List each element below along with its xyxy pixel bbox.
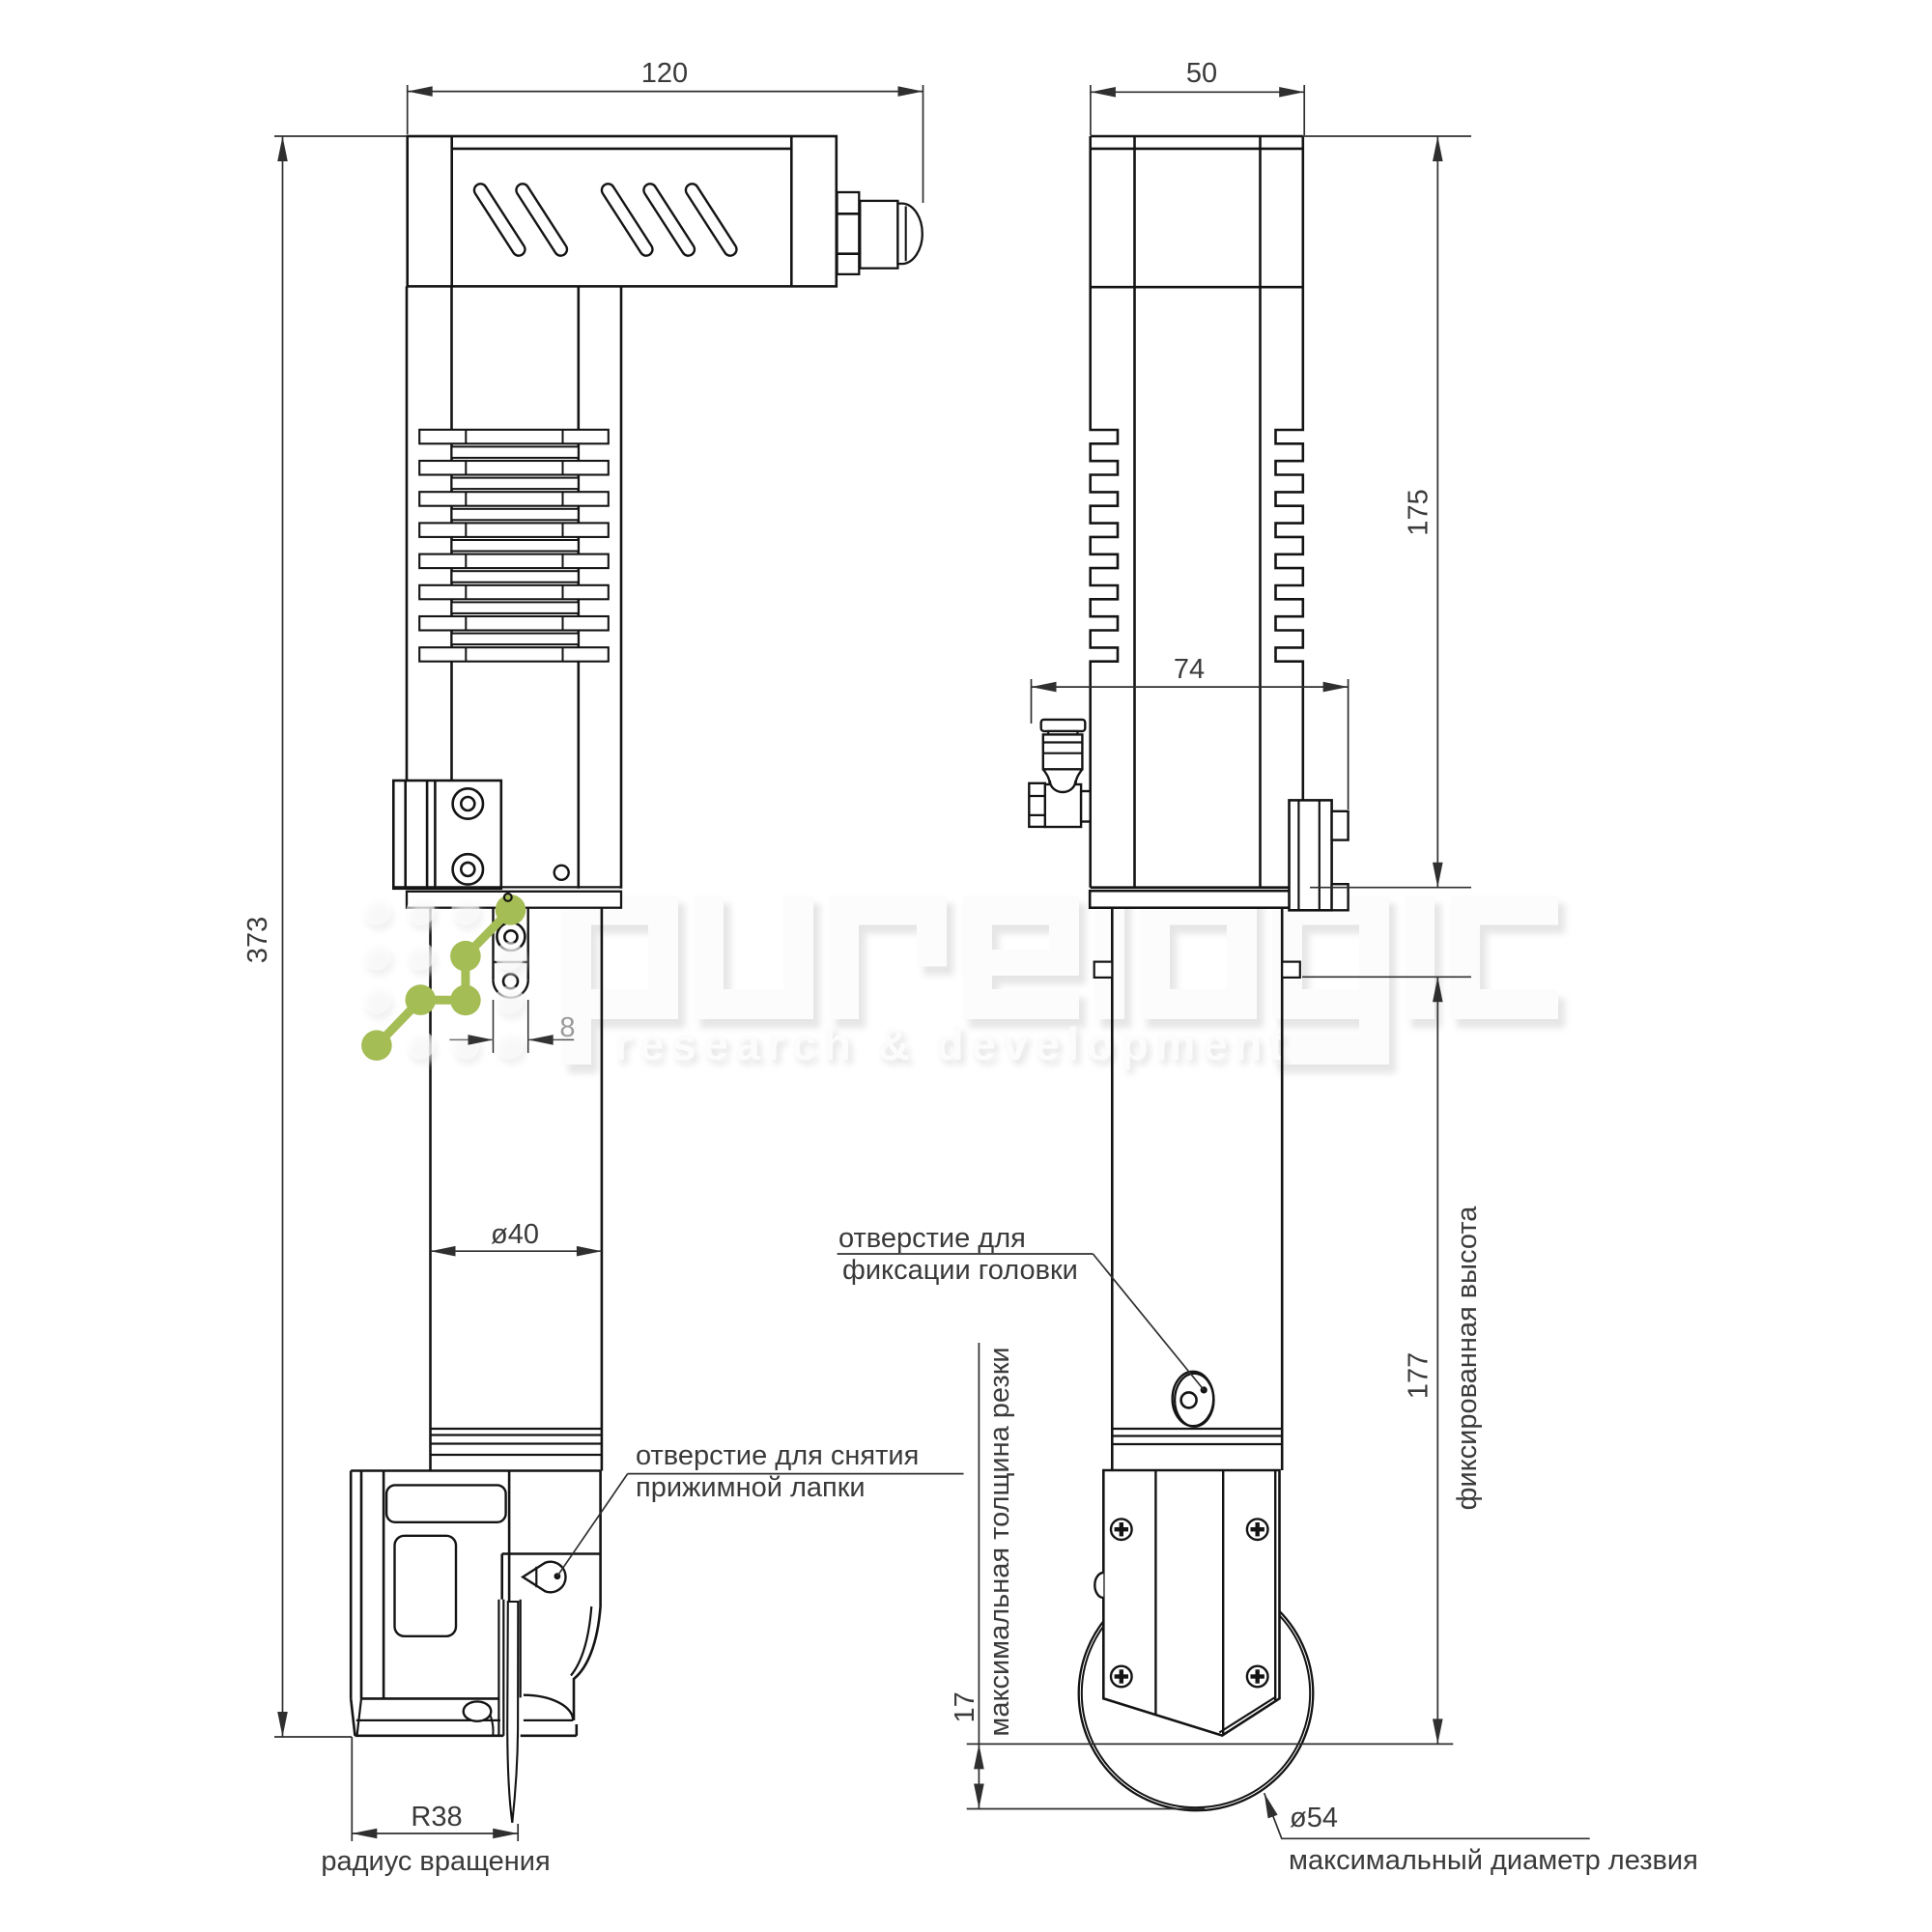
svg-text:175: 175 (1404, 489, 1435, 535)
svg-text:120: 120 (641, 58, 688, 89)
svg-text:ø40: ø40 (491, 1219, 539, 1250)
svg-text:research & development: research & development (614, 1018, 1291, 1069)
svg-text:прижимной лапки: прижимной лапки (636, 1472, 866, 1503)
svg-text:максимальная толщина резки: максимальная толщина резки (984, 1347, 1015, 1736)
svg-text:8: 8 (559, 1012, 575, 1043)
svg-text:максимальный диаметр лезвия: максимальный диаметр лезвия (1289, 1845, 1698, 1876)
svg-text:177: 177 (1404, 1352, 1435, 1399)
svg-text:радиус вращения: радиус вращения (321, 1846, 550, 1877)
svg-text:373: 373 (242, 917, 273, 963)
svg-text:74: 74 (1174, 654, 1205, 685)
svg-text:17: 17 (950, 1691, 980, 1722)
svg-text:50: 50 (1186, 58, 1217, 89)
svg-text:фиксации головки: фиксации головки (842, 1255, 1078, 1286)
svg-text:отверстие для снятия: отверстие для снятия (636, 1440, 919, 1471)
svg-text:отверстие для: отверстие для (838, 1223, 1026, 1254)
svg-text:фиксированная высота: фиксированная высота (1452, 1206, 1483, 1511)
svg-text:ø54: ø54 (1290, 1803, 1338, 1833)
svg-text:R38: R38 (411, 1802, 462, 1833)
